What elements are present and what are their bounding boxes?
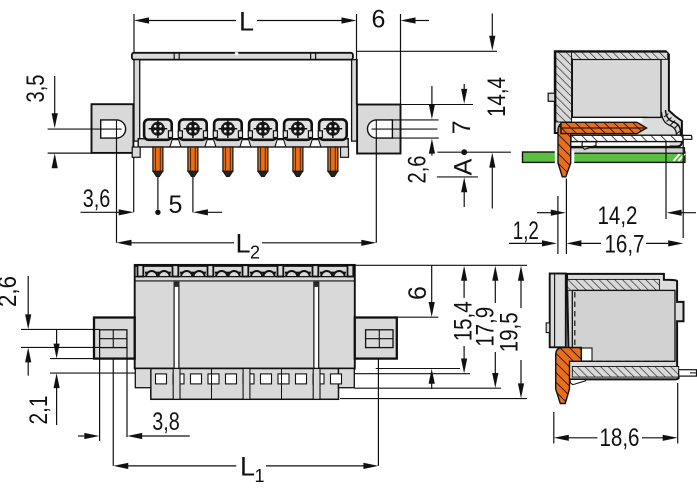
svg-text:18,6: 18,6 xyxy=(600,424,640,452)
svg-text:L: L xyxy=(240,452,255,482)
svg-text:7: 7 xyxy=(448,120,476,134)
svg-text:2,6: 2,6 xyxy=(0,276,22,307)
svg-text:2,1: 2,1 xyxy=(25,396,53,425)
svg-text:19,5: 19,5 xyxy=(496,312,524,352)
svg-text:3,6: 3,6 xyxy=(83,185,111,213)
svg-text:3,8: 3,8 xyxy=(152,408,180,436)
svg-text:6: 6 xyxy=(404,286,432,300)
svg-text:L: L xyxy=(239,6,254,36)
svg-text:6: 6 xyxy=(372,5,386,33)
svg-text:3,5: 3,5 xyxy=(22,75,50,103)
svg-text:1,2: 1,2 xyxy=(513,217,539,245)
svg-text:5: 5 xyxy=(169,191,183,219)
svg-text:14,4: 14,4 xyxy=(483,77,511,117)
svg-text:L: L xyxy=(235,229,250,259)
svg-text:A: A xyxy=(450,158,478,175)
svg-text:2,6: 2,6 xyxy=(404,156,432,184)
svg-text:14,2: 14,2 xyxy=(598,202,638,230)
svg-text:1: 1 xyxy=(254,466,264,486)
svg-text:16,7: 16,7 xyxy=(605,230,645,258)
svg-text:2: 2 xyxy=(250,243,260,263)
